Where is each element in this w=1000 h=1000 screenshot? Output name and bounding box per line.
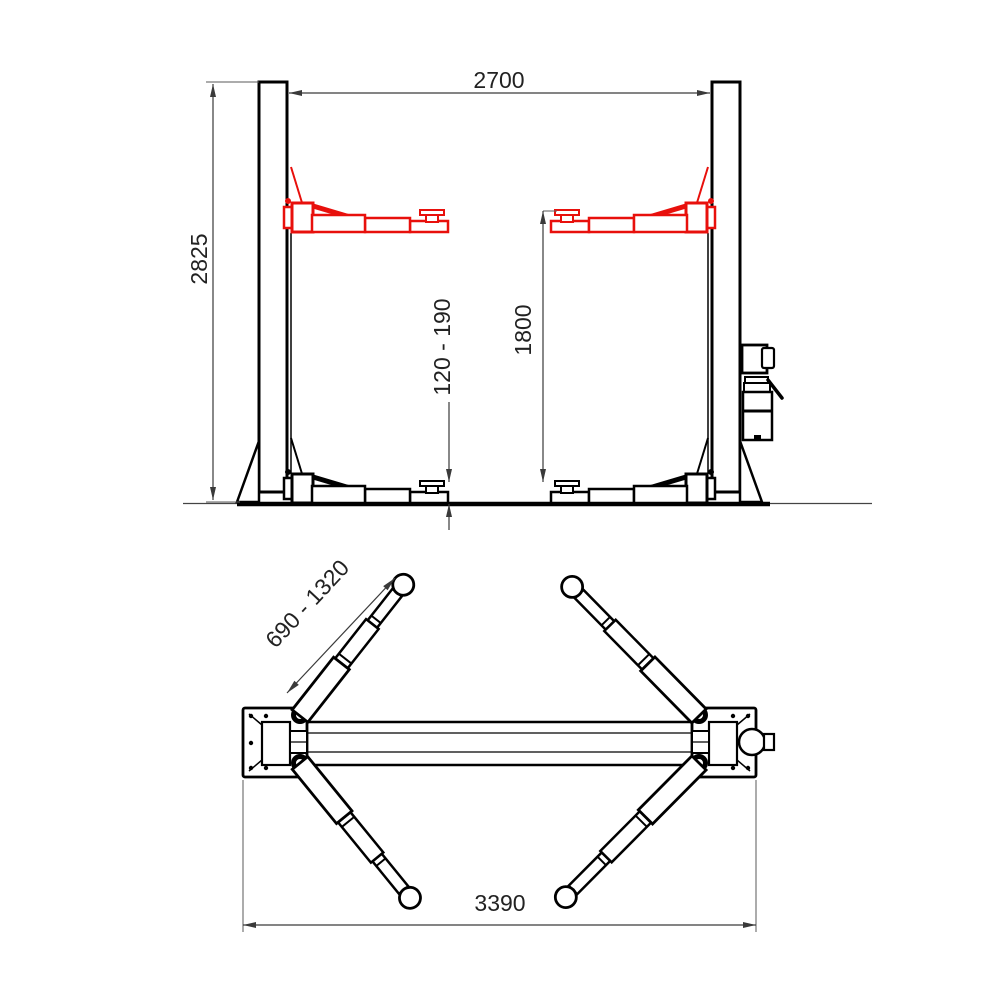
power-unit bbox=[742, 345, 782, 440]
swing-arm-rear-right bbox=[551, 756, 706, 912]
switch-box bbox=[762, 348, 774, 368]
swing-arm-front-right bbox=[557, 572, 706, 723]
dim-label-690-1320: 690 - 1320 bbox=[260, 554, 354, 652]
power-unit-tab bbox=[764, 734, 774, 750]
raised-arm-left bbox=[284, 167, 448, 232]
front-view: 2700 2825 1800 120 - 190 bbox=[183, 67, 872, 530]
diagram-canvas: 2700 2825 1800 120 - 190 bbox=[0, 0, 1000, 1000]
left-post bbox=[259, 82, 287, 492]
dim-width-between-posts: 2700 bbox=[289, 67, 710, 96]
dim-overall-height: 2825 bbox=[186, 82, 259, 502]
raised-arm-right bbox=[551, 167, 715, 232]
right-post bbox=[712, 82, 740, 492]
base-beam bbox=[307, 722, 692, 765]
plan-view: 690 - 1320 3390 bbox=[243, 554, 774, 932]
oil-tank bbox=[743, 392, 772, 440]
dim-label-120-190: 120 - 190 bbox=[429, 298, 455, 395]
swing-arm-rear-left bbox=[292, 756, 425, 912]
lowered-arm-right bbox=[551, 438, 715, 503]
dim-label-2825: 2825 bbox=[186, 233, 212, 284]
dim-label-2700: 2700 bbox=[473, 67, 524, 93]
power-unit-top bbox=[739, 729, 774, 755]
drain-plug bbox=[754, 435, 761, 440]
lowered-arm-left bbox=[284, 438, 448, 503]
power-unit-motor-top bbox=[739, 729, 765, 755]
left-foot-gusset bbox=[237, 441, 259, 502]
two-post-lift-drawing: 2700 2825 1800 120 - 190 bbox=[0, 0, 1000, 1000]
dim-label-3390: 3390 bbox=[474, 890, 525, 916]
right-foot-gusset bbox=[740, 441, 762, 502]
dim-max-lifting-height: 1800 bbox=[510, 211, 557, 482]
dim-label-1800: 1800 bbox=[510, 304, 536, 355]
valve-block bbox=[744, 383, 770, 392]
